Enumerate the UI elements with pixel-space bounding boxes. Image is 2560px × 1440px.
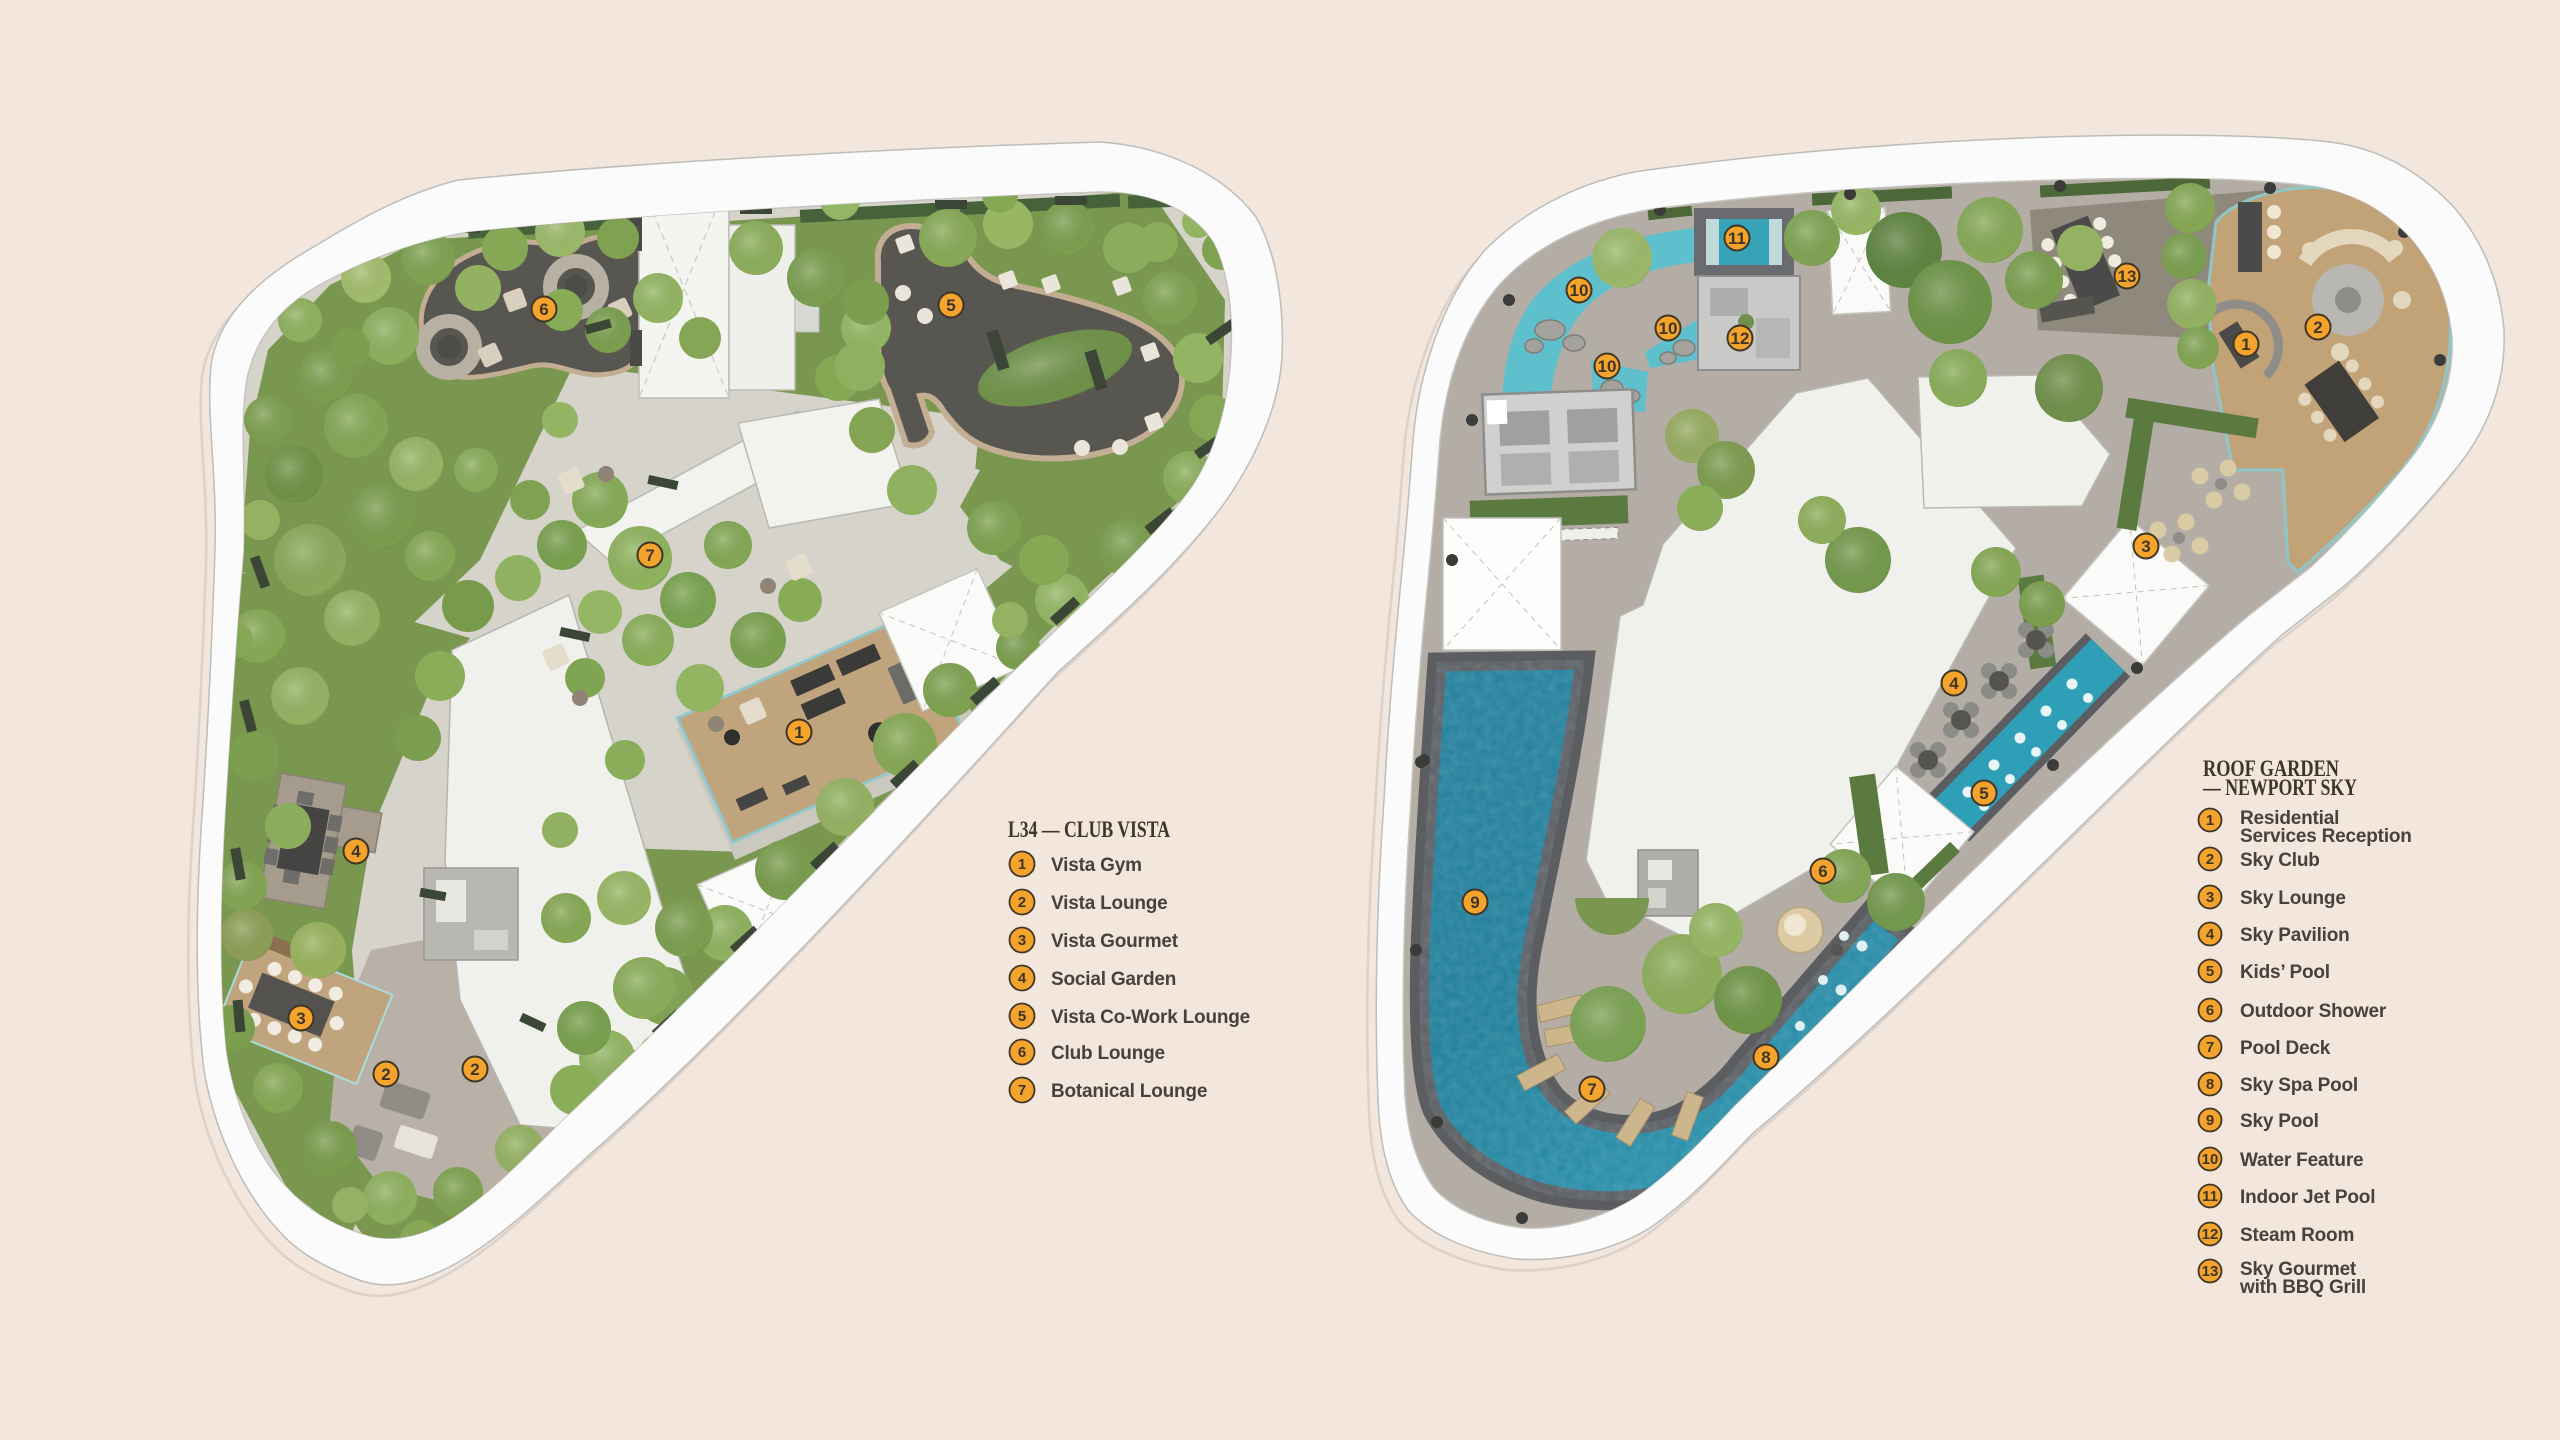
svg-text:2: 2 — [2313, 318, 2322, 337]
svg-text:Vista Gym: Vista Gym — [1051, 855, 1142, 876]
svg-text:9: 9 — [1470, 893, 1479, 912]
svg-text:Sky Spa Pool: Sky Spa Pool — [2240, 1075, 2358, 1096]
svg-text:5: 5 — [946, 296, 955, 315]
svg-text:Water Feature: Water Feature — [2240, 1150, 2363, 1171]
svg-text:L34 — CLUB VISTA: L34 — CLUB VISTA — [1008, 817, 1170, 842]
svg-text:3: 3 — [2206, 889, 2214, 906]
svg-text:2: 2 — [470, 1060, 479, 1079]
svg-text:7: 7 — [1018, 1082, 1026, 1099]
svg-text:3: 3 — [1018, 932, 1026, 949]
svg-text:Outdoor Shower: Outdoor Shower — [2240, 1001, 2387, 1022]
svg-text:9: 9 — [2206, 1112, 2214, 1129]
svg-text:8: 8 — [1761, 1048, 1770, 1067]
svg-text:4: 4 — [2206, 926, 2215, 943]
svg-text:4: 4 — [1018, 970, 1027, 987]
svg-text:Club Lounge: Club Lounge — [1051, 1043, 1165, 1064]
svg-text:1: 1 — [794, 723, 803, 742]
svg-text:5: 5 — [1979, 784, 1988, 803]
svg-text:Services Reception: Services Reception — [2240, 826, 2412, 847]
svg-text:5: 5 — [1018, 1008, 1026, 1025]
svg-text:Social Garden: Social Garden — [1051, 969, 1176, 990]
svg-text:4: 4 — [1949, 674, 1959, 693]
svg-text:Vista Lounge: Vista Lounge — [1051, 893, 1168, 914]
svg-text:13: 13 — [2118, 267, 2137, 286]
svg-text:— NEWPORT SKY: — NEWPORT SKY — [2202, 775, 2357, 800]
svg-text:10: 10 — [1570, 281, 1589, 300]
svg-text:11: 11 — [1728, 229, 1746, 248]
svg-text:2: 2 — [2206, 851, 2214, 868]
svg-text:Pool Deck: Pool Deck — [2240, 1038, 2331, 1059]
svg-text:1: 1 — [2241, 335, 2250, 354]
svg-text:8: 8 — [2206, 1076, 2214, 1093]
svg-text:Indoor Jet Pool: Indoor Jet Pool — [2240, 1187, 2375, 1208]
svg-text:10: 10 — [2202, 1151, 2219, 1168]
svg-text:Botanical Lounge: Botanical Lounge — [1051, 1081, 1207, 1102]
svg-text:Sky Club: Sky Club — [2240, 850, 2320, 871]
svg-text:1: 1 — [1018, 856, 1026, 873]
svg-text:1: 1 — [2206, 812, 2214, 829]
svg-text:10: 10 — [1659, 319, 1678, 338]
svg-text:with BBQ Grill: with BBQ Grill — [2239, 1277, 2366, 1298]
svg-text:6: 6 — [1018, 1044, 1026, 1061]
svg-text:10: 10 — [1598, 357, 1617, 376]
svg-text:2: 2 — [381, 1065, 390, 1084]
svg-text:Sky Lounge: Sky Lounge — [2240, 888, 2346, 909]
svg-text:12: 12 — [1731, 329, 1750, 348]
svg-text:6: 6 — [1818, 862, 1827, 881]
svg-text:Vista Gourmet: Vista Gourmet — [1051, 931, 1179, 952]
svg-text:13: 13 — [2202, 1263, 2219, 1280]
svg-text:5: 5 — [2206, 963, 2214, 980]
svg-text:7: 7 — [2206, 1039, 2214, 1056]
svg-text:6: 6 — [539, 300, 548, 319]
svg-text:3: 3 — [296, 1009, 305, 1028]
svg-text:4: 4 — [351, 842, 361, 861]
svg-text:12: 12 — [2202, 1226, 2219, 1243]
svg-text:Sky Pavilion: Sky Pavilion — [2240, 925, 2350, 946]
svg-text:7: 7 — [645, 546, 654, 565]
svg-text:11: 11 — [2202, 1188, 2218, 1205]
svg-text:Steam Room: Steam Room — [2240, 1225, 2354, 1246]
svg-text:Vista Co-Work Lounge: Vista Co-Work Lounge — [1051, 1007, 1250, 1028]
svg-text:6: 6 — [2206, 1002, 2214, 1019]
svg-text:7: 7 — [1587, 1080, 1596, 1099]
svg-text:Kids’ Pool: Kids’ Pool — [2240, 962, 2330, 983]
svg-text:2: 2 — [1018, 894, 1026, 911]
svg-text:Sky Pool: Sky Pool — [2240, 1111, 2319, 1132]
svg-text:3: 3 — [2141, 537, 2150, 556]
